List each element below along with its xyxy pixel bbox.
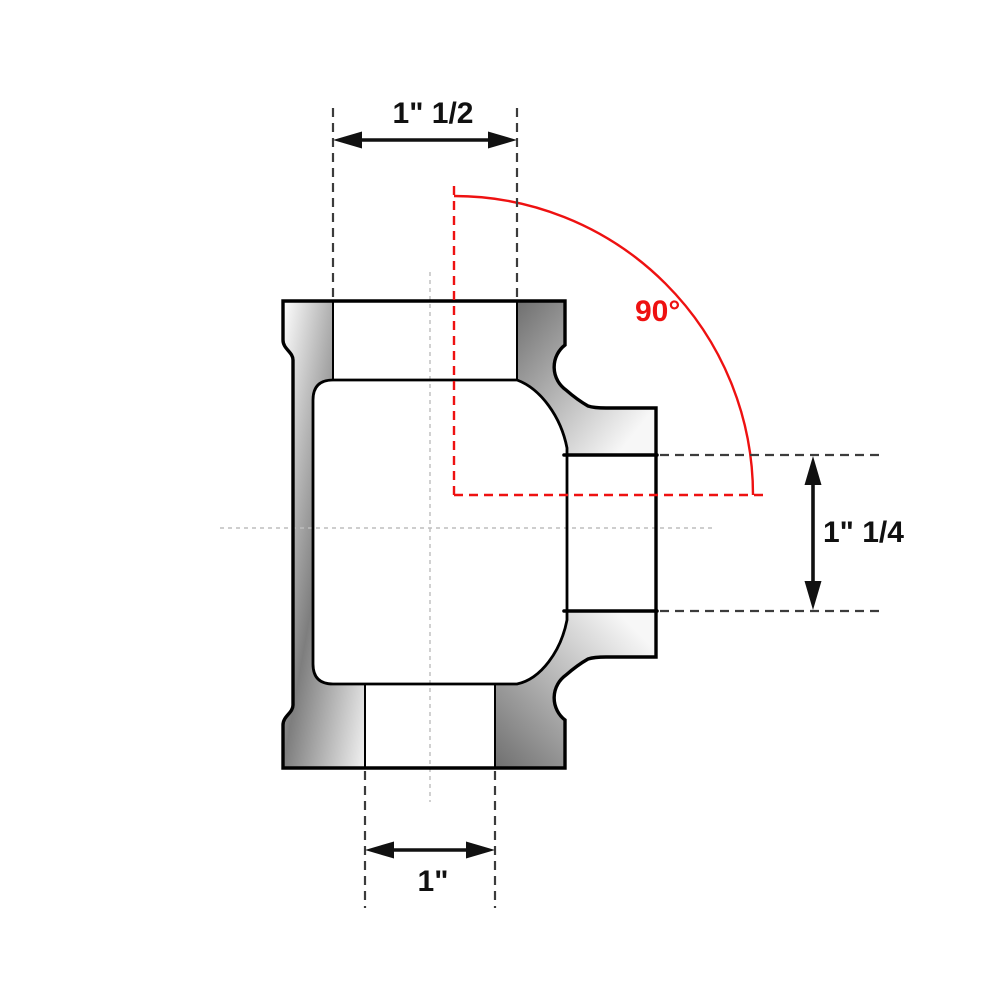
angle-label: 90° (635, 295, 680, 328)
fitting-wall-fills (283, 301, 656, 768)
body-cavity (313, 380, 567, 684)
dim-branch-label: 1" 1/4 (823, 516, 904, 549)
technical-drawing-page: 90° 1" 1/2 1" 1/4 1" (0, 0, 1000, 1000)
dim-top-arrowhead-right (488, 132, 517, 149)
dim-bottom-arrowhead-left (365, 842, 394, 859)
dim-top-arrowhead-left (333, 132, 362, 149)
dim-bottom-label: 1" (418, 865, 449, 898)
dim-branch-arrowhead-bottom (805, 581, 822, 610)
top-port-bore (333, 301, 517, 380)
dimension-branch: 1" 1/4 (805, 456, 905, 610)
branch-port-bore (567, 455, 656, 611)
dim-top-label: 1" 1/2 (393, 97, 474, 130)
dimension-bottom: 1" (365, 842, 495, 899)
dim-bottom-arrowhead-right (466, 842, 495, 859)
dimension-top: 1" 1/2 (333, 97, 517, 149)
pipe-tee-fitting-diagram: 90° 1" 1/2 1" 1/4 1" (0, 0, 1000, 1000)
dim-branch-arrowhead-top (805, 456, 822, 485)
